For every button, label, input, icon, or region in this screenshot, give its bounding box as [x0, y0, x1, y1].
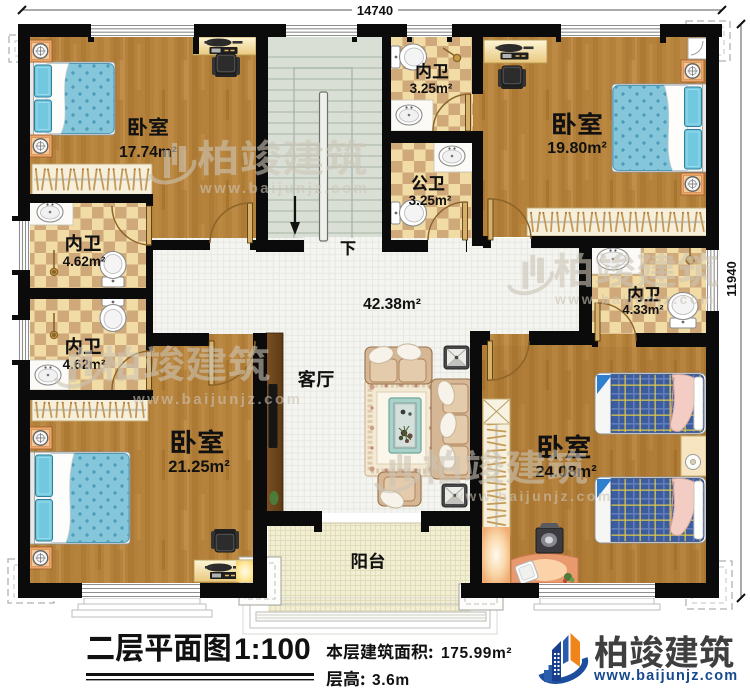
svg-text:42.38m²: 42.38m² [363, 296, 421, 313]
svg-text:21.25m²: 21.25m² [168, 458, 230, 476]
svg-text:www.baijunjz.com: www.baijunjz.com [554, 291, 716, 307]
svg-text:1:100: 1:100 [234, 633, 311, 666]
svg-text:www.baijunjz.com: www.baijunjz.com [199, 180, 369, 197]
svg-text:175.99m²: 175.99m² [441, 645, 512, 662]
svg-text:3.25m²: 3.25m² [410, 81, 453, 96]
svg-text:19.80m²: 19.80m² [547, 140, 607, 157]
svg-text:3.25m²: 3.25m² [409, 193, 452, 208]
svg-text:www.baijunjz.com: www.baijunjz.com [132, 391, 302, 408]
svg-text:11940: 11940 [724, 261, 739, 296]
svg-text:14740: 14740 [357, 3, 393, 18]
svg-text:4.62m²: 4.62m² [63, 254, 106, 269]
svg-text:www.baijunjz.com: www.baijunjz.com [451, 488, 613, 504]
svg-text:3.6m: 3.6m [372, 672, 410, 689]
svg-text:www.baijunjz.com: www.baijunjz.com [593, 668, 738, 684]
